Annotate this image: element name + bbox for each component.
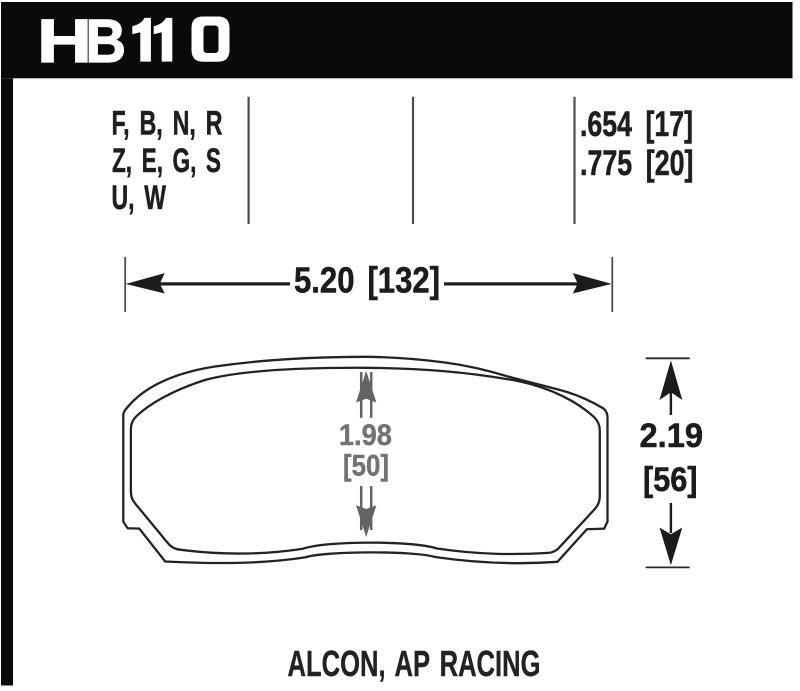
svg-text:1.98: 1.98: [339, 419, 392, 452]
svg-text:B: B: [86, 7, 127, 75]
svg-text:ALCON, AP RACING: ALCON, AP RACING: [288, 643, 541, 684]
svg-text:.654 [17]: .654 [17]: [580, 105, 693, 144]
svg-text:5.20 [132]: 5.20 [132]: [294, 260, 440, 301]
svg-text:2.19: 2.19: [640, 417, 704, 455]
svg-text:.775 [20]: .775 [20]: [580, 144, 694, 183]
svg-text:[56]: [56]: [643, 461, 698, 499]
svg-text:[50]: [50]: [343, 450, 389, 483]
svg-text:F, B, N, R: F, B, N, R: [112, 105, 223, 143]
svg-text:Z, E, G, S: Z, E, G, S: [112, 142, 221, 180]
svg-text:H: H: [37, 7, 92, 75]
svg-text:U, W: U, W: [112, 179, 167, 217]
